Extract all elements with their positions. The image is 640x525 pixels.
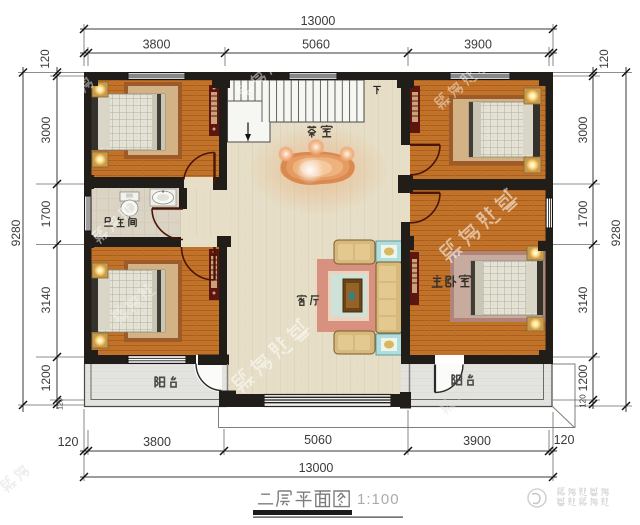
svg-text:13000: 13000: [299, 461, 334, 475]
svg-text:120: 120: [58, 435, 79, 449]
svg-text:13000: 13000: [301, 14, 336, 28]
svg-text:120: 120: [579, 394, 588, 408]
svg-text:120: 120: [40, 49, 52, 68]
svg-text:9280: 9280: [9, 219, 23, 246]
svg-text:3000: 3000: [39, 116, 53, 143]
svg-text:5060: 5060: [304, 433, 332, 447]
svg-text:3140: 3140: [576, 286, 590, 313]
svg-text:1200: 1200: [39, 364, 53, 391]
svg-text:1200: 1200: [576, 364, 590, 391]
svg-text:3900: 3900: [463, 434, 491, 448]
svg-text:3140: 3140: [39, 286, 53, 313]
svg-text:3000: 3000: [576, 116, 590, 143]
svg-text:120: 120: [599, 49, 611, 68]
svg-text:9280: 9280: [609, 219, 623, 246]
svg-text:120: 120: [58, 398, 65, 410]
svg-text:120: 120: [554, 433, 575, 447]
svg-text:1700: 1700: [576, 200, 590, 227]
svg-text:3800: 3800: [143, 38, 171, 52]
svg-text:3900: 3900: [464, 38, 492, 52]
svg-text:1700: 1700: [39, 200, 53, 227]
svg-text:3800: 3800: [143, 435, 171, 449]
svg-text:1:100: 1:100: [357, 491, 400, 508]
svg-text:5060: 5060: [302, 38, 330, 52]
